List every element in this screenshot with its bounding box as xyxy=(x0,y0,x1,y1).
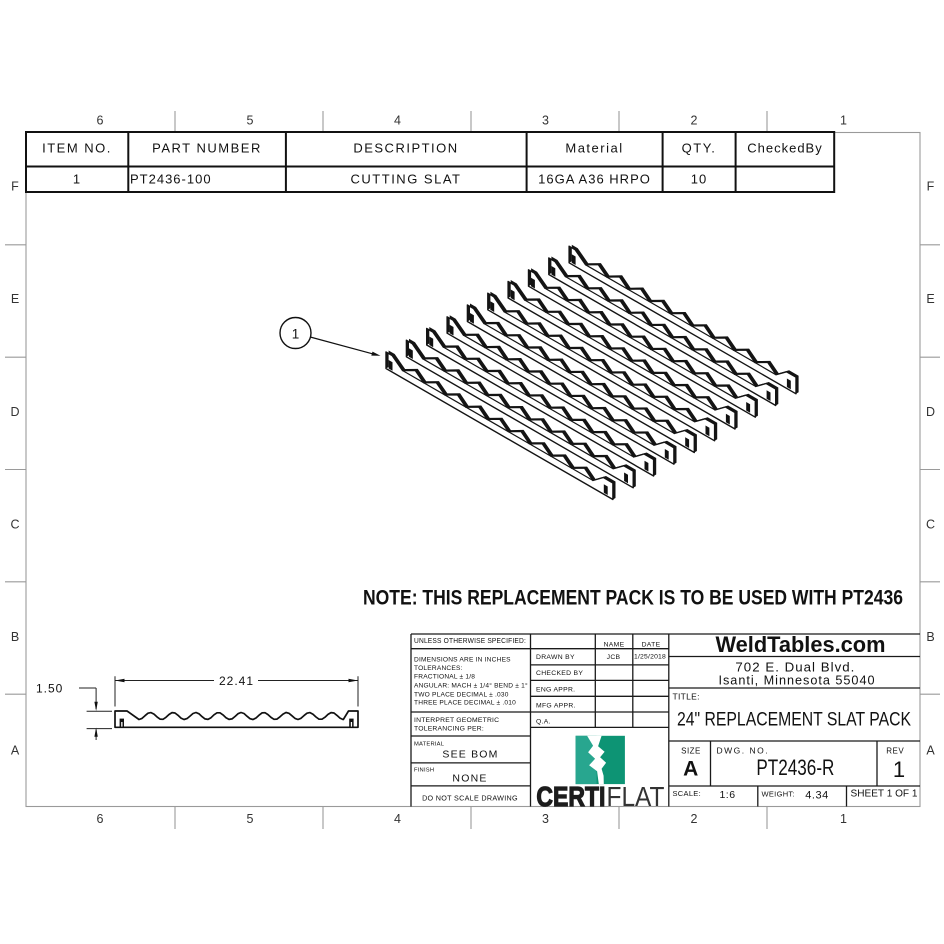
svg-text:1: 1 xyxy=(292,327,300,342)
svg-text:FINISH: FINISH xyxy=(414,768,434,774)
svg-text:TWO PLACE DECIMAL ± .030: TWO PLACE DECIMAL ± .030 xyxy=(414,692,509,699)
svg-text:B: B xyxy=(926,630,934,644)
svg-text:Isanti, Minnesota 55040: Isanti, Minnesota 55040 xyxy=(719,673,876,688)
svg-text:10: 10 xyxy=(691,172,707,187)
svg-text:DIMENSIONS ARE IN INCHES: DIMENSIONS ARE IN INCHES xyxy=(414,657,511,664)
svg-text:NOTE: THIS REPLACEMENT PACK IS: NOTE: THIS REPLACEMENT PACK IS TO BE USE… xyxy=(363,587,903,610)
svg-text:A: A xyxy=(11,744,20,758)
svg-text:C: C xyxy=(926,518,935,532)
svg-text:ENG APPR.: ENG APPR. xyxy=(536,687,575,694)
svg-text:1:6: 1:6 xyxy=(719,789,735,801)
svg-text:TOLERANCES:: TOLERANCES: xyxy=(414,665,463,672)
svg-text:FRACTIONAL ± 1/8: FRACTIONAL ± 1/8 xyxy=(414,674,475,681)
svg-text:ITEM NO.: ITEM NO. xyxy=(42,141,112,156)
svg-text:Material: Material xyxy=(565,141,623,156)
svg-text:CHECKED BY: CHECKED BY xyxy=(536,670,583,677)
svg-text:WEIGHT:: WEIGHT: xyxy=(762,790,795,799)
svg-text:3: 3 xyxy=(542,812,549,826)
svg-text:F: F xyxy=(927,180,935,194)
svg-text:4: 4 xyxy=(394,114,401,128)
svg-text:B: B xyxy=(11,630,19,644)
svg-text:A: A xyxy=(683,758,698,781)
svg-text:SIZE: SIZE xyxy=(681,747,701,756)
svg-text:FLAT: FLAT xyxy=(607,781,665,812)
svg-text:NONE: NONE xyxy=(452,773,487,785)
svg-text:DWG. NO.: DWG. NO. xyxy=(717,746,770,756)
svg-text:1/25/2018: 1/25/2018 xyxy=(634,654,666,661)
svg-text:A: A xyxy=(926,744,935,758)
svg-text:C: C xyxy=(10,518,19,532)
svg-text:1: 1 xyxy=(73,172,81,187)
svg-text:16GA A36 HRPO: 16GA A36 HRPO xyxy=(538,172,651,187)
svg-text:2: 2 xyxy=(691,114,698,128)
svg-text:1.50: 1.50 xyxy=(36,681,63,695)
svg-text:MATERIAL: MATERIAL xyxy=(414,742,445,748)
svg-text:QTY.: QTY. xyxy=(682,141,717,156)
svg-text:THREE PLACE DECIMAL ± .010: THREE PLACE DECIMAL ± .010 xyxy=(414,700,516,707)
svg-text:DATE: DATE xyxy=(642,642,661,649)
svg-text:REV: REV xyxy=(886,747,904,756)
svg-text:INTERPRET GEOMETRIC: INTERPRET GEOMETRIC xyxy=(414,717,499,724)
svg-text:JCB: JCB xyxy=(607,654,621,661)
svg-text:ANGULAR: MACH ± 1/4° BEND ± 1: ANGULAR: MACH ± 1/4° BEND ± 1° xyxy=(414,682,528,690)
svg-text:6: 6 xyxy=(97,114,104,128)
svg-text:D: D xyxy=(926,405,935,419)
svg-text:WeldTables.com: WeldTables.com xyxy=(716,632,886,657)
svg-text:E: E xyxy=(11,292,19,306)
svg-text:1: 1 xyxy=(840,114,847,128)
svg-text:4.34: 4.34 xyxy=(805,790,828,802)
svg-text:5: 5 xyxy=(247,812,254,826)
svg-text:PART NUMBER: PART NUMBER xyxy=(152,141,262,156)
svg-text:DRAWN BY: DRAWN BY xyxy=(536,654,575,661)
svg-text:NAME: NAME xyxy=(604,642,625,649)
svg-text:DO NOT SCALE DRAWING: DO NOT SCALE DRAWING xyxy=(422,794,518,803)
svg-text:1: 1 xyxy=(893,757,905,782)
svg-text:UNLESS OTHERWISE SPECIFIED:: UNLESS OTHERWISE SPECIFIED: xyxy=(414,636,526,645)
svg-text:MFG APPR.: MFG APPR. xyxy=(536,703,576,710)
svg-text:Q.A.: Q.A. xyxy=(536,719,551,726)
svg-text:CUTTING SLAT: CUTTING SLAT xyxy=(351,172,462,187)
svg-text:6: 6 xyxy=(97,812,104,826)
svg-text:1: 1 xyxy=(840,812,847,826)
svg-text:PT2436-R: PT2436-R xyxy=(756,755,834,780)
svg-text:5: 5 xyxy=(247,114,254,128)
svg-text:3: 3 xyxy=(542,114,549,128)
svg-text:CERTI: CERTI xyxy=(536,781,605,812)
svg-text:F: F xyxy=(11,180,19,194)
svg-text:D: D xyxy=(10,405,19,419)
svg-text:22.41: 22.41 xyxy=(219,674,254,688)
svg-text:TITLE:: TITLE: xyxy=(673,692,700,702)
svg-text:2: 2 xyxy=(691,812,698,826)
svg-text:SCALE:: SCALE: xyxy=(673,789,701,798)
svg-text:PT2436-100: PT2436-100 xyxy=(130,172,212,187)
svg-text:4: 4 xyxy=(394,812,401,826)
svg-text:E: E xyxy=(926,292,934,306)
svg-text:24" REPLACEMENT SLAT PACK: 24" REPLACEMENT SLAT PACK xyxy=(677,710,911,731)
svg-text:SHEET 1 OF 1: SHEET 1 OF 1 xyxy=(851,789,918,800)
svg-text:CheckedBy: CheckedBy xyxy=(747,141,822,156)
svg-text:SEE BOM: SEE BOM xyxy=(442,749,498,761)
svg-text:TOLERANCING PER:: TOLERANCING PER: xyxy=(414,726,484,733)
svg-text:DESCRIPTION: DESCRIPTION xyxy=(353,141,458,156)
